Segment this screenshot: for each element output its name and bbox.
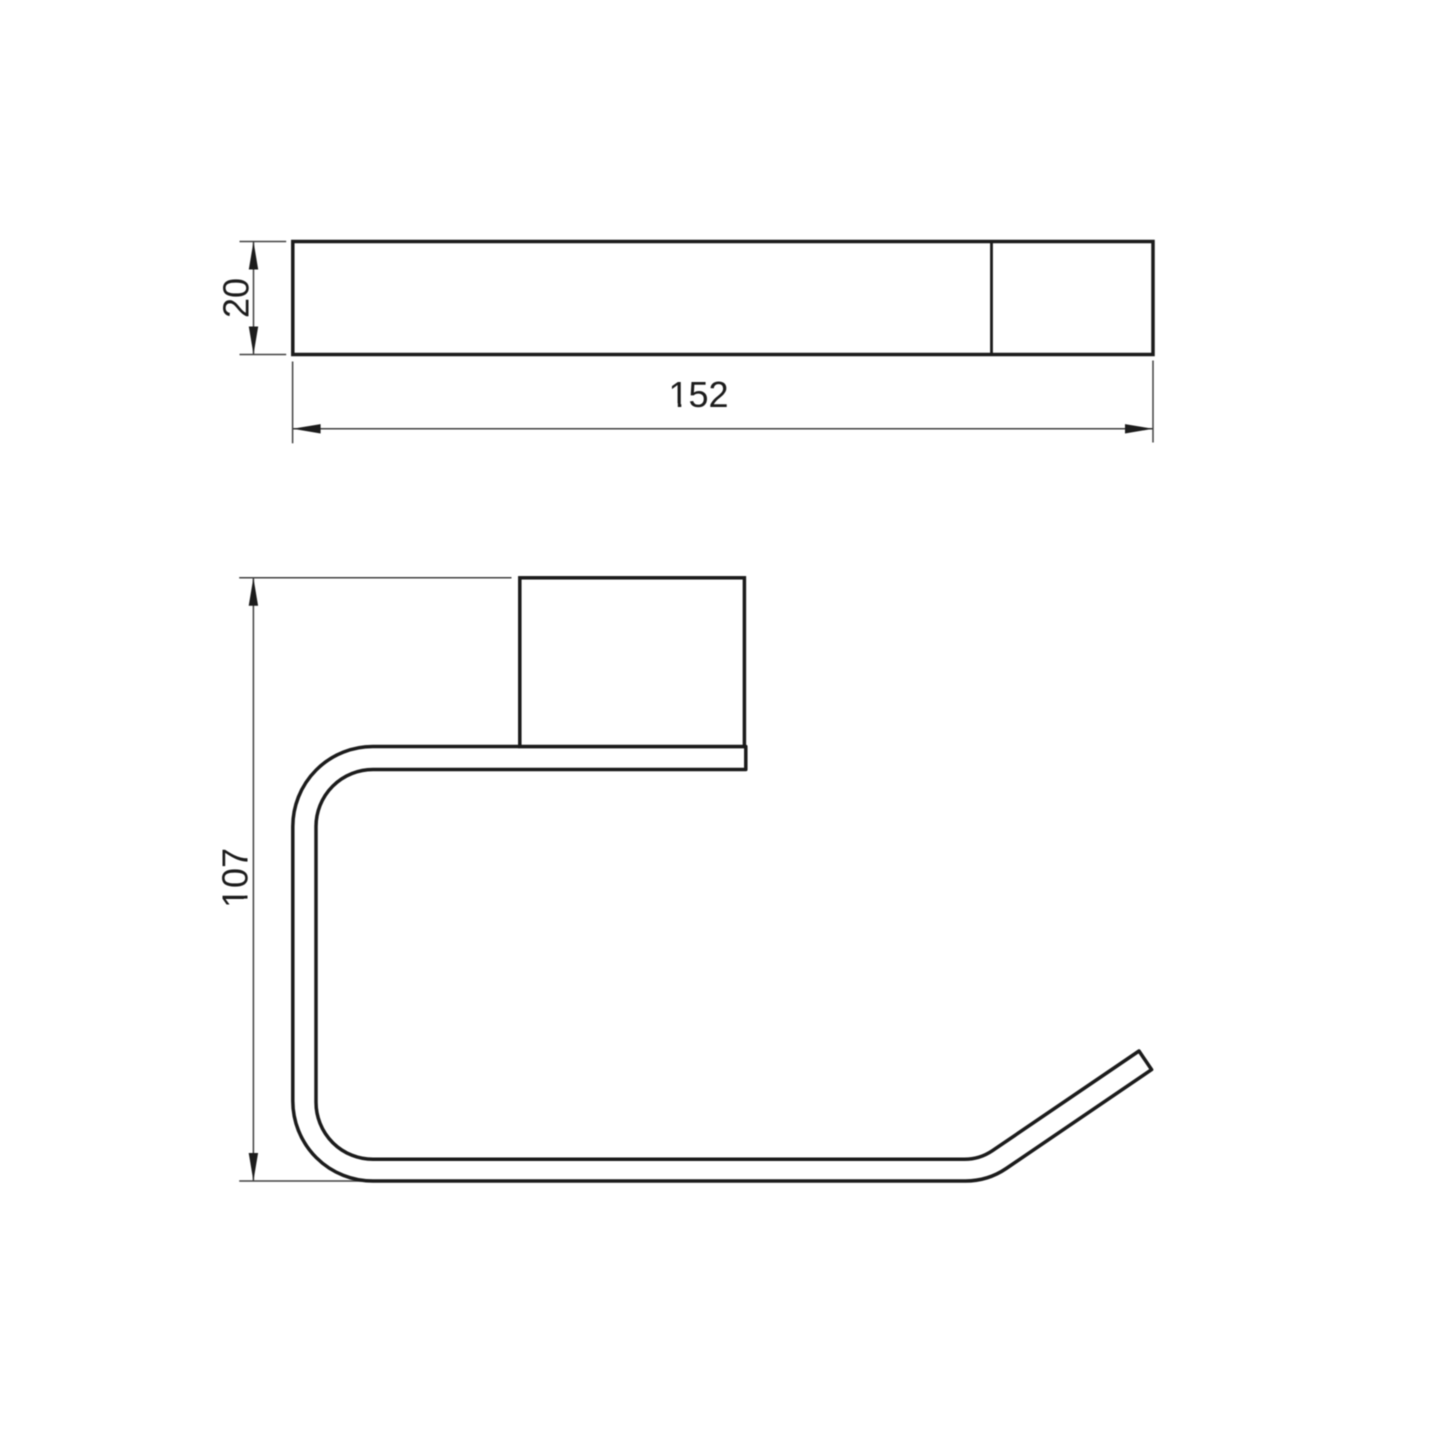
svg-text:20: 20 [216,278,257,318]
svg-text:152: 152 [668,374,728,415]
svg-text:107: 107 [215,848,256,908]
